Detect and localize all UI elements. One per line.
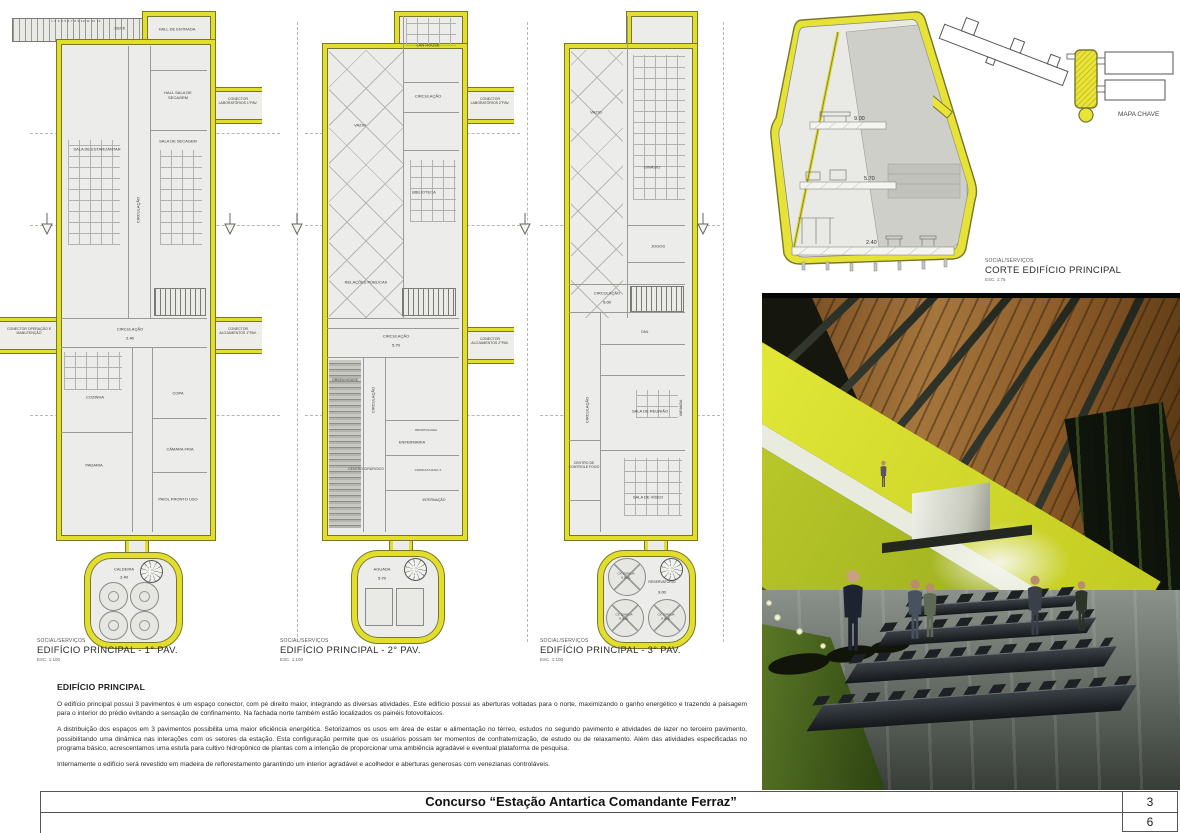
room-label: VAZIO bbox=[590, 111, 602, 116]
connector-stub bbox=[1097, 58, 1105, 64]
dining-tables bbox=[68, 140, 120, 245]
wall bbox=[385, 420, 459, 421]
room-label: ODONTOLOGIA bbox=[415, 429, 437, 433]
connector-labs-2 bbox=[465, 88, 514, 123]
description-heading: EDIFÍCIO PRINCIPAL bbox=[57, 682, 747, 692]
level-mark: 2.40 bbox=[120, 575, 128, 580]
room-label: CIRCULAÇÃO bbox=[594, 292, 620, 297]
description-paragraph: O edifício principal possui 3 pavimentos… bbox=[57, 700, 747, 718]
titleblock-line bbox=[1122, 831, 1178, 832]
sector-label: SOCIAL/SERVIÇOS bbox=[37, 638, 178, 644]
wall bbox=[327, 318, 459, 319]
connector-labs-1 bbox=[213, 88, 262, 123]
room-label: GREEN HOUSE bbox=[330, 378, 360, 382]
drying-racks bbox=[160, 150, 202, 245]
section-title: CORTE EDIFÍCIO PRINCIPAL bbox=[985, 265, 1121, 276]
level-mark: 5.70 bbox=[864, 176, 875, 182]
room-label: CIRCULAÇÃO bbox=[383, 335, 409, 340]
stepped-volume bbox=[888, 164, 960, 198]
room-label: PAIOL PRONTO USO bbox=[158, 498, 197, 503]
room-label: COZINHA bbox=[86, 396, 104, 401]
connector-stub bbox=[1067, 54, 1075, 59]
room-label: CENTRO CIRÚRGICO bbox=[348, 467, 384, 471]
gridline bbox=[297, 22, 298, 642]
room-label: JOGOS bbox=[651, 245, 665, 250]
void-double-height bbox=[571, 50, 623, 318]
room-label: COPA bbox=[172, 392, 183, 397]
highlighted-main-building bbox=[1075, 50, 1097, 108]
wall bbox=[600, 312, 601, 532]
wall bbox=[403, 112, 459, 113]
spiral-stair bbox=[404, 558, 427, 581]
plan-title: EDIFÍCIO PRINCIPAL - 1° PAV. bbox=[37, 645, 178, 656]
key-map-label: MAPA CHAVE bbox=[1118, 111, 1160, 118]
wall bbox=[128, 46, 129, 318]
ceiling-light bbox=[766, 600, 772, 606]
description-paragraph: Internamente o edifício será revestido e… bbox=[57, 760, 747, 769]
room-label: SALA DE REUNIÃO bbox=[632, 410, 668, 415]
room-label: BIBLIOTECA bbox=[412, 191, 436, 196]
room-label: CONSULTA RAIO X bbox=[414, 469, 442, 473]
void-double-height bbox=[329, 50, 403, 318]
wall bbox=[61, 347, 207, 348]
connector-operations bbox=[0, 318, 59, 353]
room-label: ENFERMARIA bbox=[399, 441, 425, 446]
wall bbox=[152, 472, 207, 473]
room-label: CIRCULAÇÃO bbox=[372, 387, 377, 413]
wall bbox=[363, 357, 364, 532]
room-label: CIRCULAÇÃO bbox=[137, 197, 142, 223]
section-cut-arrow bbox=[518, 213, 532, 235]
level-mark: 2.40 bbox=[126, 336, 134, 341]
stair bbox=[630, 286, 684, 312]
key-map: MAPA CHAVE bbox=[933, 6, 1180, 124]
level-mark: 5.70 bbox=[392, 343, 400, 348]
gridline bbox=[527, 22, 528, 642]
wall bbox=[327, 328, 459, 329]
wall bbox=[403, 16, 404, 318]
section-cut-arrow bbox=[223, 213, 237, 235]
plan-title: EDIFÍCIO PRINCIPAL - 3° PAV. bbox=[540, 645, 681, 656]
scale-label: ESC. 1:75 bbox=[985, 277, 1121, 282]
room-label: DECK bbox=[114, 27, 125, 32]
video-seats bbox=[624, 458, 682, 516]
ceiling-light bbox=[796, 628, 803, 635]
wall bbox=[627, 225, 685, 226]
tank-label: CX. D'ÁGUA 8.000L bbox=[611, 613, 637, 620]
scale-label: ESC. 1:100 bbox=[37, 657, 178, 662]
room-label: RELAÇÕES PÚBLICAS bbox=[345, 281, 388, 286]
room-label: HALL SALA DE SECAGEM bbox=[156, 91, 200, 101]
room-label: CIRCULAÇÃO bbox=[117, 328, 143, 333]
kitchen-counters bbox=[64, 352, 122, 390]
wall bbox=[385, 455, 459, 456]
wall bbox=[627, 16, 628, 318]
wall bbox=[152, 418, 207, 419]
connector-label: CONECTOR LABORATÓRIOS 1°PAV. bbox=[216, 97, 260, 105]
lodging-building bbox=[1105, 52, 1173, 74]
wall bbox=[385, 490, 459, 491]
wall bbox=[152, 347, 153, 532]
water-tank bbox=[365, 588, 393, 626]
spiral-stair bbox=[140, 560, 163, 583]
competition-board-sheet: 1 2 3 4 5 6 7 8 9 10 11 12 13 DECK HALL … bbox=[0, 0, 1180, 833]
level-mark: 9.00 bbox=[658, 590, 666, 595]
wall bbox=[150, 46, 151, 318]
wall bbox=[569, 440, 600, 441]
connector-label: CONECTOR OPERAÇÃO E MANUTENÇÃO bbox=[4, 327, 54, 335]
room-label: VARANDA bbox=[679, 400, 683, 417]
ceiling-light bbox=[820, 643, 826, 649]
ceiling-light bbox=[774, 614, 781, 621]
wall bbox=[150, 130, 207, 131]
room-label: LAN HOUSE bbox=[416, 44, 439, 49]
competition-title: Concurso “Estação Antartica Comandante F… bbox=[40, 794, 1122, 809]
room-label: PADARIA bbox=[85, 464, 102, 469]
boiler-tank bbox=[99, 611, 128, 640]
wall bbox=[600, 375, 685, 376]
spiral-stair bbox=[660, 558, 683, 581]
room-label: SALA DE ESTAR/JANTAR bbox=[73, 148, 120, 153]
connector-lodging-1 bbox=[213, 318, 262, 353]
plan1-caption: SOCIAL/SERVIÇOS EDIFÍCIO PRINCIPAL - 1° … bbox=[37, 638, 178, 662]
secondary-building bbox=[933, 94, 952, 118]
sector-label: SOCIAL/SERVIÇOS bbox=[280, 638, 421, 644]
connector-stub bbox=[1097, 86, 1105, 92]
sheet-number: 3 bbox=[1122, 795, 1178, 809]
connector-label: CONECTOR LABORATÓRIOS 2°PAV. bbox=[468, 97, 512, 105]
gridline bbox=[723, 22, 724, 642]
room-label: CALDEIRA bbox=[114, 568, 134, 573]
green-house-planting bbox=[329, 360, 361, 528]
room-label: VAZIO bbox=[354, 124, 366, 129]
tank-label: CX. D'ÁGUA 8.000L bbox=[613, 572, 639, 579]
wall bbox=[132, 347, 133, 532]
level-mark: 9.00 bbox=[854, 116, 865, 122]
project-description: EDIFÍCIO PRINCIPAL O edifício principal … bbox=[57, 682, 747, 776]
room-label: RESERVATÓRIO bbox=[645, 580, 679, 584]
titleblock-line bbox=[40, 791, 1178, 792]
room-label: CIRCULAÇÃO bbox=[415, 95, 441, 100]
wall bbox=[61, 318, 207, 319]
wall bbox=[385, 357, 386, 532]
stair bbox=[154, 288, 206, 316]
level-mark: 9.00 bbox=[603, 300, 611, 305]
description-paragraph: A distribuição dos espaços em 3 paviment… bbox=[57, 725, 747, 753]
highlighted-pod bbox=[1079, 108, 1093, 122]
plan-title: EDIFÍCIO PRINCIPAL - 2° PAV. bbox=[280, 645, 421, 656]
deck-tread-numbers: 1 2 3 4 5 6 7 8 9 10 11 12 13 bbox=[51, 20, 101, 24]
room-label: CIRCULAÇÃO bbox=[586, 397, 591, 423]
boiler-tank bbox=[130, 611, 159, 640]
boiler-tank bbox=[130, 582, 159, 611]
wall bbox=[61, 432, 132, 433]
titleblock-line bbox=[40, 812, 1178, 813]
stair bbox=[402, 288, 456, 316]
room-label: SALA DE VÍDEO bbox=[633, 496, 663, 501]
sector-label: SOCIAL/SERVIÇOS bbox=[985, 258, 1121, 264]
room-label: INTERNAÇÃO bbox=[423, 498, 446, 502]
wall bbox=[600, 344, 685, 345]
main-bar-building bbox=[937, 11, 1073, 91]
room-label: SALA DE SECAGEM bbox=[159, 140, 197, 145]
connector-label: CONECTOR ALOJAMENTOS 1°PAV. bbox=[216, 327, 260, 335]
boiler-tank bbox=[99, 582, 128, 611]
room-label: DML bbox=[641, 330, 648, 334]
section-caption: SOCIAL/SERVIÇOS CORTE EDIFÍCIO PRINCIPAL… bbox=[985, 258, 1121, 282]
water-tank bbox=[396, 588, 424, 626]
sector-label: SOCIAL/SERVIÇOS bbox=[540, 638, 681, 644]
level-mark: 2.40 bbox=[866, 240, 877, 246]
wall bbox=[627, 262, 685, 263]
plan2-caption: SOCIAL/SERVIÇOS EDIFÍCIO PRINCIPAL - 2° … bbox=[280, 638, 421, 662]
wall bbox=[403, 150, 459, 151]
sheet-total: 6 bbox=[1122, 815, 1178, 829]
scale-label: ESC. 1:100 bbox=[280, 657, 421, 662]
wall bbox=[569, 500, 600, 501]
section-cut-arrow bbox=[290, 213, 304, 235]
wall bbox=[600, 450, 685, 451]
gym-equipment bbox=[633, 55, 685, 200]
wall bbox=[150, 70, 207, 71]
level-mark: 5.70 bbox=[378, 576, 386, 581]
section-cut-arrow bbox=[40, 213, 54, 235]
section-cut-arrow bbox=[696, 213, 710, 235]
wall bbox=[569, 284, 685, 285]
wall bbox=[403, 82, 459, 83]
connector-label: CONECTOR ALOJAMENTOS 2°PAV. bbox=[468, 337, 512, 345]
scale-label: ESC. 1:100 bbox=[540, 657, 681, 662]
lodging-building bbox=[1105, 80, 1165, 100]
room-label: CÂMARA FRIA bbox=[166, 448, 193, 453]
connector-lodging-2 bbox=[465, 328, 514, 363]
interior-render-image bbox=[762, 293, 1180, 790]
room-label: CENTRO DE CONTROLE FOGO bbox=[567, 461, 601, 469]
room-label: HALL DE ENTRADA bbox=[159, 28, 196, 33]
room-label: GINÁSIO bbox=[644, 166, 661, 171]
room-label: AGUADA bbox=[374, 568, 391, 573]
tank-label: CX. D'ÁGUA 8.000L bbox=[653, 613, 679, 620]
plan3-caption: SOCIAL/SERVIÇOS EDIFÍCIO PRINCIPAL - 3° … bbox=[540, 638, 681, 662]
wall bbox=[327, 357, 459, 358]
wall bbox=[569, 312, 685, 313]
